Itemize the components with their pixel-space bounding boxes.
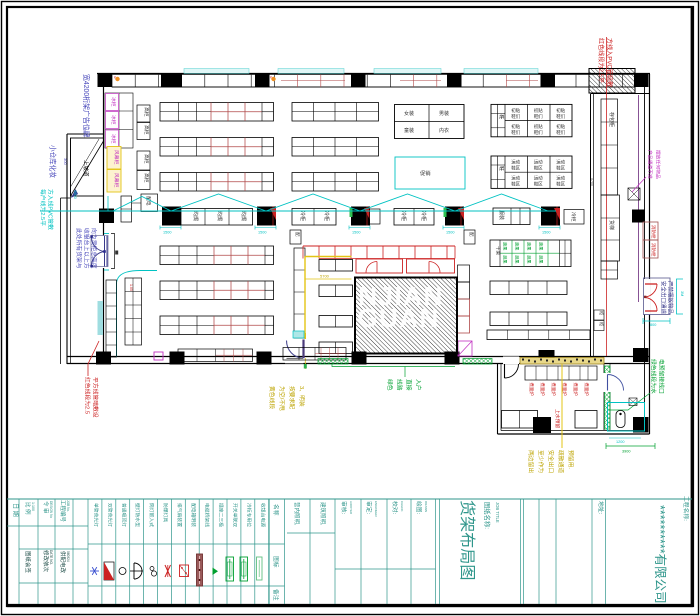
svg-text:图纸会签: 图纸会签: [24, 551, 32, 574]
svg-text:3600: 3600: [73, 190, 78, 200]
svg-text:HUIGUAN: HUIGUAN: [308, 303, 440, 333]
svg-text:收银台上以上方: 收银台上以上方: [83, 228, 91, 269]
svg-text:鞋们: 鞋们: [511, 113, 520, 120]
svg-text:方入线PVC管敷: 方入线PVC管敷: [47, 189, 55, 230]
svg-text:鞋: 鞋: [498, 166, 505, 171]
svg-text:1500: 1500: [446, 231, 454, 235]
svg-text:鞋区: 鞋区: [511, 165, 520, 172]
svg-text:双管荧光灯: 双管荧光灯: [106, 503, 113, 527]
svg-text:冷柜: 冷柜: [400, 211, 407, 221]
svg-text:插座二三极: 插座二三极: [218, 503, 225, 527]
svg-text:严禁摆放物品: 严禁摆放物品: [667, 281, 675, 315]
svg-text:筒灯嵌入式: 筒灯嵌入式: [148, 503, 155, 527]
svg-text:鞋们: 鞋们: [556, 113, 565, 120]
svg-text:配电箱明装: 配电箱明装: [190, 503, 197, 527]
svg-text:内衣: 内衣: [439, 127, 449, 134]
svg-text:修改依次: 修改依次: [42, 550, 50, 573]
svg-text:运动: 运动: [534, 175, 543, 182]
svg-text:配: 配: [468, 232, 474, 237]
svg-text:初贴: 初贴: [534, 107, 543, 114]
svg-text:1500: 1500: [258, 231, 266, 235]
svg-text:高柜: 高柜: [143, 173, 150, 183]
svg-text:运动: 运动: [511, 175, 520, 182]
svg-text:排气扇装置: 排气扇装置: [176, 503, 183, 527]
svg-text:冷柜: 冷柜: [299, 211, 306, 221]
svg-text:均焗: 均焗: [240, 211, 247, 221]
svg-text:蔬果: 蔬果: [538, 242, 545, 251]
svg-text:初贴: 初贴: [511, 107, 520, 114]
svg-text:1500: 1500: [542, 231, 550, 235]
svg-text:蔬果: 蔬果: [514, 255, 521, 264]
svg-text:男装: 男装: [439, 110, 449, 117]
svg-text:平方线管暗敷设: 平方线管暗敷设: [92, 377, 100, 418]
svg-text:电缆桥架线: 电缆桥架线: [204, 503, 211, 527]
svg-text:干果: 干果: [495, 246, 501, 255]
svg-text:运动: 运动: [511, 159, 520, 166]
svg-text:至少作为: 至少作为: [537, 450, 545, 473]
svg-text:图纸名称:: 图纸名称:: [483, 502, 492, 529]
svg-text:**********有限公司: **********有限公司: [653, 505, 667, 604]
svg-text:5700: 5700: [320, 274, 330, 279]
svg-text:审定:: 审定:: [365, 501, 373, 515]
svg-text:鞋区: 鞋区: [556, 165, 565, 172]
svg-text:蔬果: 蔬果: [526, 255, 533, 264]
svg-text:摆放任何物品: 摆放任何物品: [655, 150, 662, 179]
svg-text:每户线为2.5平: 每户线为2.5平: [39, 189, 47, 226]
svg-text:服装: 服装: [498, 210, 505, 220]
svg-text:CHECK: CHECK: [400, 501, 404, 512]
svg-text:营内照明,: 营内照明,: [293, 502, 301, 526]
svg-text:煮面炉: 煮面炉: [550, 383, 557, 397]
svg-text:电预留接线口: 电预留接线口: [658, 359, 666, 394]
svg-text:上水预留: 上水预留: [554, 409, 561, 428]
svg-text:3900: 3900: [622, 450, 630, 454]
svg-text:高柜: 高柜: [143, 125, 150, 135]
svg-text:1:100: 1:100: [31, 502, 35, 511]
svg-text:柜: 柜: [598, 322, 605, 326]
svg-text:开关单联双: 开关单联双: [232, 503, 239, 527]
svg-text:小仓库化妆: 小仓库化妆: [49, 145, 58, 178]
svg-text:煮面炉: 煮面炉: [572, 383, 579, 397]
svg-text:日 期: 日 期: [12, 503, 20, 517]
svg-text:供配电改: 供配电改: [59, 551, 67, 574]
svg-text:货梯: 货梯: [608, 220, 615, 230]
svg-text:安全出口: 安全出口: [547, 450, 555, 473]
svg-text:柜: 柜: [598, 311, 605, 315]
svg-text:JOB No.: JOB No.: [66, 500, 70, 512]
svg-text:冰柜: 冰柜: [110, 134, 117, 144]
svg-text:冷柜: 冷柜: [420, 211, 427, 221]
svg-text:风幕柜: 风幕柜: [113, 150, 120, 165]
svg-text:蔬果: 蔬果: [514, 242, 521, 251]
svg-text:防爆灯具: 防爆灯具: [162, 503, 169, 522]
svg-text:初贴: 初贴: [534, 123, 543, 130]
svg-text:1500: 1500: [352, 231, 360, 235]
svg-text:单管荧光灯: 单管荧光灯: [93, 503, 100, 527]
svg-text:DATE NO.: DATE NO.: [49, 550, 53, 565]
svg-text:DESIGN No: DESIGN No: [49, 501, 53, 518]
svg-text:消防栓: 消防栓: [650, 225, 657, 239]
svg-text:普通吸顶灯: 普通吸顶灯: [120, 503, 127, 527]
svg-text:冷柜: 冷柜: [323, 211, 330, 221]
svg-text:名称: 名称: [272, 504, 280, 516]
svg-text:鞋们: 鞋们: [511, 129, 520, 136]
svg-text:建筑照明,: 建筑照明,: [319, 502, 327, 526]
svg-text:冰柜: 冰柜: [110, 115, 117, 125]
svg-text:5700: 5700: [590, 178, 594, 186]
svg-text:女装: 女装: [404, 110, 414, 117]
svg-text:1.05: 1.05: [129, 284, 133, 291]
svg-text:促销: 促销: [420, 169, 431, 177]
svg-text:DRAWN: DRAWN: [424, 501, 428, 512]
svg-text:图标: 图标: [272, 556, 280, 568]
svg-text:冷柜: 冷柜: [570, 212, 577, 222]
svg-text:令 审: 令 审: [42, 501, 50, 514]
svg-text:1200: 1200: [616, 440, 624, 444]
svg-text:运动: 运动: [556, 175, 565, 182]
svg-text:鞋: 鞋: [498, 114, 505, 119]
svg-text:壁灯防水型: 壁灯防水型: [134, 503, 141, 527]
svg-text:比 例: 比 例: [24, 502, 32, 515]
svg-text:风幕柜: 风幕柜: [113, 173, 120, 188]
svg-text:均焗: 均焗: [216, 211, 223, 221]
svg-text:为空/不甩: 为空/不甩: [278, 386, 286, 411]
svg-text:冰柜: 冰柜: [110, 97, 117, 107]
svg-text:备注: 备注: [272, 589, 280, 601]
svg-text:直接: 直接: [405, 379, 413, 391]
svg-text:收银台电源: 收银台电源: [259, 503, 266, 527]
svg-text:AUDITED: AUDITED: [349, 501, 353, 515]
svg-text:两边留出: 两边留出: [527, 450, 535, 473]
svg-text:煮面炉: 煮面炉: [528, 383, 535, 397]
svg-text:产品通道不准: 产品通道不准: [647, 150, 654, 179]
svg-text:冷柜专用位: 冷柜专用位: [245, 503, 252, 527]
svg-text:高柜: 高柜: [143, 107, 150, 117]
svg-text:货架布局图: 货架布局图: [458, 500, 476, 580]
svg-text:运动: 运动: [556, 159, 565, 166]
svg-text:工程编号: 工程编号: [59, 500, 67, 523]
svg-text:预留用.: 预留用.: [567, 450, 575, 469]
svg-text:1500: 1500: [163, 231, 171, 235]
svg-text:鞋区: 鞋区: [534, 165, 543, 172]
svg-text:3M: 3M: [680, 291, 684, 296]
svg-text:蔬果: 蔬果: [502, 255, 509, 264]
svg-text:绿色线段为水: 绿色线段为水: [650, 359, 658, 394]
svg-text:3、明装: 3、明装: [298, 386, 306, 407]
svg-text:红色线段为2.5: 红色线段为2.5: [84, 377, 92, 414]
svg-text:鞋们: 鞋们: [556, 129, 565, 136]
svg-text:蔬果: 蔬果: [538, 255, 545, 264]
svg-text:煮面炉: 煮面炉: [583, 383, 590, 397]
svg-text:300: 300: [63, 158, 68, 165]
svg-text:校对:: 校对:: [391, 501, 399, 515]
svg-text:上坡道: 上坡道: [82, 160, 90, 177]
svg-text:童装: 童装: [404, 127, 414, 134]
svg-text:宽4200桁架广告位牌: 宽4200桁架广告位牌: [82, 74, 91, 138]
svg-text:800: 800: [650, 323, 656, 327]
svg-text:鞋们: 鞋们: [534, 129, 543, 136]
svg-text:绘图:: 绘图:: [415, 501, 423, 515]
svg-text:安全出口通道: 安全出口通道: [660, 281, 668, 315]
svg-text:线路: 线路: [396, 379, 404, 391]
svg-text:红色线段为2.5平: 红色线段为2.5平: [597, 38, 605, 83]
svg-text:此处所有货架与: 此处所有货架与: [75, 228, 83, 269]
svg-text:鞋们: 鞋们: [534, 113, 543, 120]
svg-text:初贴: 初贴: [556, 123, 565, 130]
svg-text:060924: 060924: [66, 551, 70, 562]
svg-text:高柜: 高柜: [143, 154, 150, 164]
svg-text:煮面炉: 煮面炉: [539, 383, 546, 397]
svg-text:审核:: 审核:: [340, 501, 348, 515]
svg-text:配: 配: [294, 232, 300, 237]
svg-text:ENGINEER: ENGINEER: [374, 501, 378, 518]
svg-text:疏散通道: 疏散通道: [557, 450, 565, 473]
svg-text:黄色线段: 黄色线段: [268, 386, 276, 409]
svg-text:均焗: 均焗: [192, 211, 199, 221]
svg-text:方线入PVC管暗敷: 方线入PVC管暗敷: [606, 38, 614, 87]
svg-text:JOB TITLE: JOB TITLE: [495, 502, 500, 523]
svg-text:存包柜: 存包柜: [608, 112, 615, 127]
svg-text:运动: 运动: [534, 159, 543, 166]
svg-text:入户: 入户: [415, 379, 423, 391]
svg-text:鞋区: 鞋区: [511, 181, 520, 188]
svg-text:地址:: 地址:: [597, 501, 605, 515]
svg-text:蔬果: 蔬果: [526, 242, 533, 251]
svg-text:绿色: 绿色: [386, 379, 394, 391]
svg-text:初贴: 初贴: [511, 123, 520, 130]
svg-text:鞋区: 鞋区: [534, 181, 543, 188]
svg-text:鞋区: 鞋区: [556, 181, 565, 188]
svg-text:工程名称:: 工程名称:: [682, 496, 690, 521]
svg-text:消防栓: 消防栓: [650, 243, 657, 257]
svg-text:按要求配: 按要求配: [288, 386, 296, 409]
svg-text:初贴: 初贴: [556, 107, 565, 114]
svg-text:蔬果: 蔬果: [502, 242, 509, 251]
